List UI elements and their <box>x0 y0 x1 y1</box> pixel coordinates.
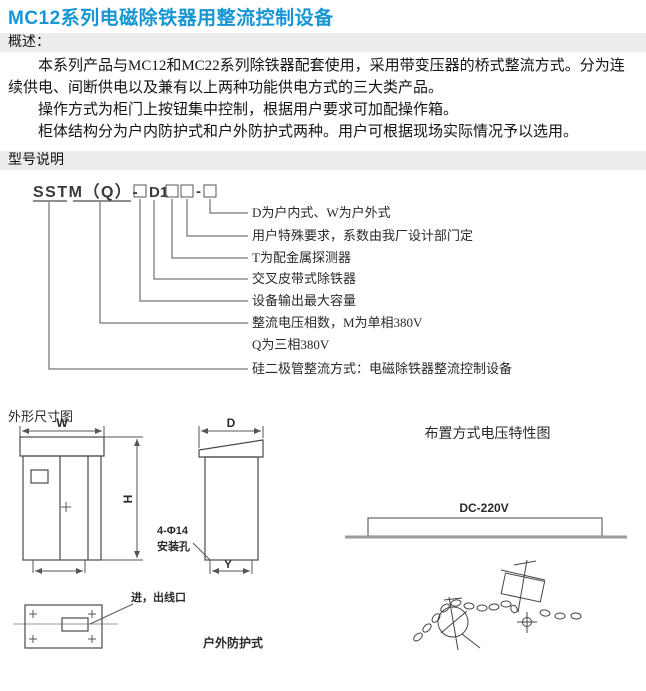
depth-dimension-label: D <box>227 416 236 430</box>
model-code-mid: D1 <box>149 184 168 201</box>
nameplate-window <box>31 470 48 483</box>
iron-remover-box <box>501 573 544 602</box>
cabinet-side-view: D Y 4-Φ14 安装孔 <box>157 416 263 574</box>
overview-paragraphs: 本系列产品与MC12和MC22系列除铁器配套使用，采用带变压器的桥式整流方式。分… <box>8 55 639 143</box>
model-code-prefix: SSTM（Q）- <box>33 183 139 201</box>
base-dimension-label: Y <box>224 559 232 571</box>
mounting-hole-label-line1: 4-Φ14 <box>157 525 189 537</box>
overview-paragraph-3: 柜体结构分为户内防护式和户外防护式两种。用户可根据现场实际情况予以选用。 <box>8 121 639 143</box>
overview-paragraph-2: 操作方式为柜门上按钮集中控制，根据用户要求可加配操作箱。 <box>8 99 639 121</box>
cabinet-front-view: W H <box>20 416 143 573</box>
sloped-roof <box>199 440 263 457</box>
center-mark <box>517 612 537 633</box>
model-label-2: T为配金属探测器 <box>252 250 351 265</box>
layout-voltage-diagram: DC-220V <box>345 501 627 537</box>
width-dimension-label: W <box>56 416 68 430</box>
model-leader-lines <box>49 199 248 369</box>
model-code-text: SSTM（Q）- D1 - <box>33 183 216 201</box>
cable-outlet-label: 进，出线口 <box>131 590 186 604</box>
model-heading: 型号说明 <box>8 153 64 168</box>
rectifier-cabinet-outline <box>368 518 602 536</box>
model-label-5: 整流电压相数，M为单相380V <box>252 315 423 330</box>
door-handle-cross <box>61 502 71 512</box>
drawings: W H D <box>0 400 646 691</box>
mounting-hole-label-line2: 安装孔 <box>157 539 190 553</box>
model-code-box-4 <box>204 185 216 197</box>
cable-outlet-opening <box>62 618 88 631</box>
overview-section-bar: 概述： <box>0 33 646 52</box>
cable-outlet-leader <box>90 604 133 624</box>
catalog-page: MC12系列电磁除铁器用整流控制设备 概述： 本系列产品与MC12和MC22系列… <box>0 0 646 691</box>
model-label-7: 硅二极管整流方式：电磁除铁器整流控制设备 <box>252 361 512 376</box>
height-dimension-label: H <box>121 495 135 504</box>
model-code-box-3 <box>181 185 193 197</box>
model-label-4: 设备输出最大容量 <box>252 293 356 308</box>
model-label-0: D为户内式、W为户外式 <box>252 205 391 220</box>
dc-voltage-label: DC-220V <box>459 501 508 515</box>
page-title: MC12系列电磁除铁器用整流控制设备 <box>8 3 334 30</box>
material-blobs <box>412 599 581 642</box>
model-label-1: 用户特殊要求，系数由我厂设计部门定 <box>252 228 473 243</box>
overview-heading: 概述： <box>8 35 50 50</box>
outdoor-type-label: 户外防护式 <box>203 635 263 650</box>
base-plan-view: 进，出线口 户外防护式 <box>13 590 263 650</box>
mounting-hole-leader <box>193 543 210 560</box>
model-labels: D为户内式、W为户外式 用户特殊要求，系数由我厂设计部门定 T为配金属探测器 交… <box>252 205 512 376</box>
model-label-3: 交叉皮带式除铁器 <box>252 271 356 286</box>
model-label-6: Q为三相380V <box>252 337 330 352</box>
overview-paragraph-1: 本系列产品与MC12和MC22系列除铁器配套使用，采用带变压器的桥式整流方式。分… <box>8 55 639 99</box>
conveyor-arrangement-sketch <box>412 560 581 650</box>
model-code-dash: - <box>196 183 201 200</box>
model-code-diagram: SSTM（Q）- D1 - D为户内式、W为户外式 用户特殊要求，系数由我厂设计… <box>0 173 646 385</box>
model-section-bar: 型号说明 <box>0 151 646 170</box>
